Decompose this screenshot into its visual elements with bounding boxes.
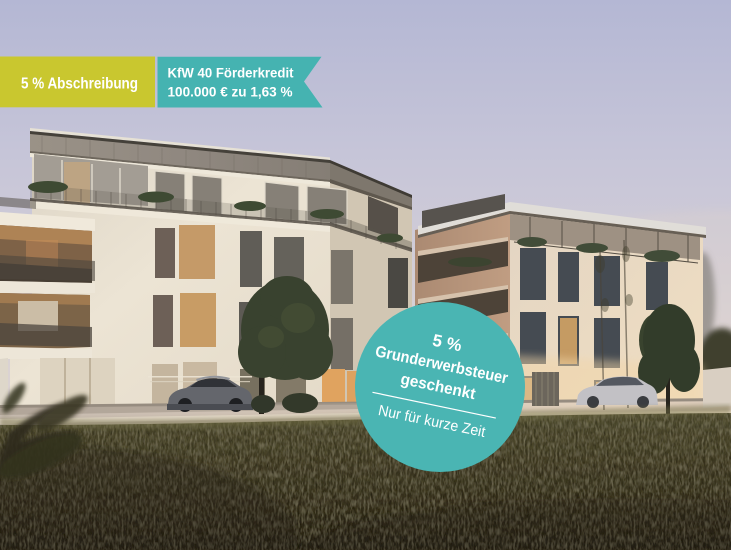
svg-text:5 % Abschreibung: 5 % Abschreibung: [21, 76, 138, 93]
svg-text:100.000 € zu 1,63 %: 100.000 € zu 1,63 %: [168, 85, 293, 100]
svg-text:KfW 40 Förderkredit: KfW 40 Förderkredit: [168, 66, 294, 81]
